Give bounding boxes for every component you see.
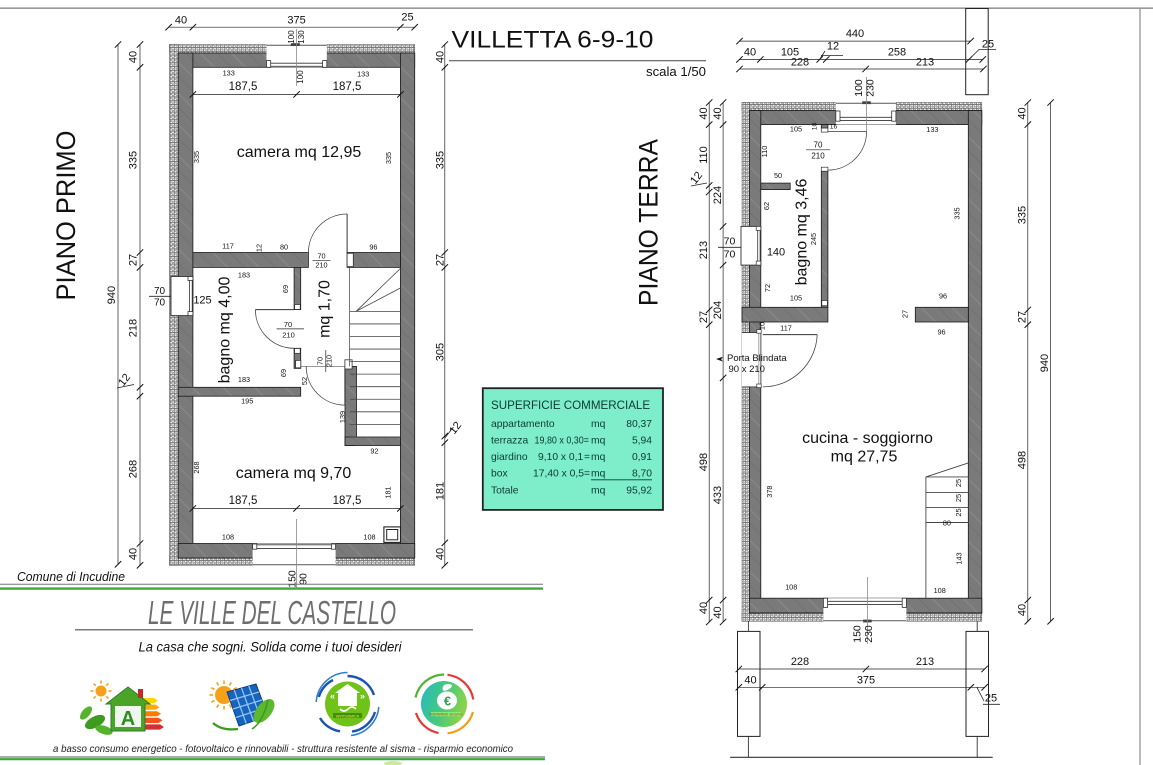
svg-text:40: 40 bbox=[744, 675, 756, 687]
svg-text:375: 375 bbox=[287, 15, 305, 27]
svg-text:LE VILLE DEL CASTELLO: LE VILLE DEL CASTELLO bbox=[148, 594, 396, 631]
svg-text:mq 27,75: mq 27,75 bbox=[831, 449, 898, 466]
svg-text:108: 108 bbox=[222, 533, 234, 542]
svg-text:mq: mq bbox=[591, 469, 606, 480]
svg-text:335: 335 bbox=[192, 151, 201, 163]
svg-text:70: 70 bbox=[316, 357, 325, 365]
svg-text:70: 70 bbox=[284, 320, 292, 329]
svg-text:16: 16 bbox=[830, 124, 838, 131]
svg-text:70: 70 bbox=[317, 252, 325, 261]
svg-text:213: 213 bbox=[916, 656, 934, 668]
svg-text:box: box bbox=[491, 469, 508, 480]
svg-text:10: 10 bbox=[758, 322, 767, 330]
svg-text:17,40 x 0,5: 17,40 x 0,5 bbox=[533, 469, 584, 480]
svg-text:40: 40 bbox=[1017, 604, 1029, 616]
svg-text:25: 25 bbox=[985, 693, 997, 705]
svg-text:95,92: 95,92 bbox=[626, 486, 652, 497]
svg-text:mq: mq bbox=[591, 419, 606, 430]
svg-text:70: 70 bbox=[154, 298, 166, 309]
svg-text:218: 218 bbox=[128, 319, 140, 337]
svg-text:19,80 x 0,30=: 19,80 x 0,30= bbox=[535, 436, 590, 447]
svg-text:12: 12 bbox=[255, 244, 264, 252]
svg-text:268: 268 bbox=[192, 461, 201, 473]
svg-text:80: 80 bbox=[280, 243, 288, 252]
svg-text:50: 50 bbox=[774, 171, 782, 180]
svg-text:245: 245 bbox=[809, 233, 818, 245]
svg-text:mq: mq bbox=[591, 436, 606, 447]
svg-text:433: 433 bbox=[712, 486, 724, 504]
svg-text:90 x 210: 90 x 210 bbox=[729, 364, 765, 375]
svg-text:69: 69 bbox=[279, 369, 288, 377]
svg-text:mq 1,70: mq 1,70 bbox=[317, 280, 334, 338]
svg-text:70: 70 bbox=[814, 141, 823, 150]
svg-text:498: 498 bbox=[1017, 451, 1029, 469]
svg-text:181: 181 bbox=[384, 486, 393, 498]
svg-text:RISPARMIO SICURO: RISPARMIO SICURO bbox=[430, 713, 463, 717]
svg-text:90: 90 bbox=[298, 573, 310, 585]
svg-text:PIANO TERRA: PIANO TERRA bbox=[634, 139, 664, 306]
svg-text:27: 27 bbox=[435, 254, 447, 266]
svg-text:335: 335 bbox=[435, 151, 447, 169]
svg-text:210: 210 bbox=[811, 152, 825, 161]
svg-text:5,94: 5,94 bbox=[632, 436, 652, 447]
svg-text:40: 40 bbox=[712, 107, 724, 119]
svg-text:335: 335 bbox=[128, 151, 140, 169]
svg-text:335: 335 bbox=[952, 207, 961, 219]
svg-text:133: 133 bbox=[223, 69, 235, 78]
svg-text:213: 213 bbox=[916, 57, 934, 69]
svg-text:»: » bbox=[360, 691, 365, 701]
svg-text:camera mq 9,70: camera mq 9,70 bbox=[236, 465, 352, 482]
svg-text:40: 40 bbox=[744, 47, 756, 59]
svg-text:108: 108 bbox=[934, 586, 946, 595]
svg-text:181: 181 bbox=[435, 482, 447, 500]
svg-text:498: 498 bbox=[698, 453, 710, 471]
svg-text:940: 940 bbox=[1039, 354, 1051, 372]
svg-text:PIANO PRIMO: PIANO PRIMO bbox=[51, 131, 81, 301]
svg-text:8,70: 8,70 bbox=[632, 469, 652, 480]
svg-text:80: 80 bbox=[943, 519, 951, 528]
svg-text:143: 143 bbox=[955, 552, 964, 564]
svg-text:228: 228 bbox=[791, 656, 809, 668]
svg-text:27: 27 bbox=[698, 311, 710, 323]
svg-text:335: 335 bbox=[1017, 206, 1029, 224]
svg-text:108: 108 bbox=[363, 533, 375, 542]
svg-text:40: 40 bbox=[698, 602, 710, 614]
svg-text:Porta Blindata: Porta Blindata bbox=[727, 353, 787, 364]
svg-text:305: 305 bbox=[435, 343, 447, 361]
svg-text:187,5: 187,5 bbox=[229, 495, 258, 507]
svg-text:9,10 x 0,1: 9,10 x 0,1 bbox=[538, 452, 583, 463]
svg-text:mq: mq bbox=[591, 452, 606, 463]
svg-text:bagno mq 4,00: bagno mq 4,00 bbox=[217, 277, 234, 384]
svg-text:187,5: 187,5 bbox=[229, 81, 258, 93]
svg-text:25: 25 bbox=[954, 479, 963, 487]
svg-text:110: 110 bbox=[698, 146, 710, 164]
svg-text:25: 25 bbox=[954, 508, 963, 516]
svg-text:150: 150 bbox=[852, 625, 864, 643]
svg-text:70: 70 bbox=[154, 286, 166, 297]
svg-text:210: 210 bbox=[282, 331, 295, 340]
svg-text:117: 117 bbox=[780, 324, 792, 333]
svg-text:0,91: 0,91 bbox=[632, 452, 652, 463]
svg-text:A: A bbox=[121, 708, 135, 730]
svg-text:«: « bbox=[330, 691, 335, 701]
svg-text:105: 105 bbox=[790, 125, 802, 134]
svg-text:100: 100 bbox=[287, 30, 296, 44]
svg-text:335: 335 bbox=[384, 152, 393, 164]
svg-text:228: 228 bbox=[791, 57, 809, 69]
svg-text:108: 108 bbox=[785, 583, 797, 592]
svg-text:224: 224 bbox=[712, 186, 724, 204]
svg-text:27: 27 bbox=[1017, 311, 1029, 323]
svg-text:133: 133 bbox=[357, 70, 369, 79]
svg-text:187,5: 187,5 bbox=[333, 81, 362, 93]
svg-text:€: € bbox=[444, 695, 451, 709]
svg-text:Totale: Totale bbox=[491, 486, 519, 497]
svg-text:940: 940 bbox=[106, 286, 118, 304]
svg-text:40: 40 bbox=[712, 606, 724, 618]
svg-text:27: 27 bbox=[128, 254, 140, 266]
svg-text:268: 268 bbox=[128, 460, 140, 478]
svg-text:195: 195 bbox=[241, 397, 253, 406]
svg-text:80,37: 80,37 bbox=[626, 419, 652, 430]
svg-text:187,5: 187,5 bbox=[333, 495, 362, 507]
svg-text:10: 10 bbox=[812, 123, 819, 131]
svg-text:210: 210 bbox=[325, 355, 334, 367]
svg-text:camera mq 12,95: camera mq 12,95 bbox=[237, 144, 362, 161]
svg-text:52: 52 bbox=[300, 377, 309, 385]
svg-text:96: 96 bbox=[937, 328, 945, 337]
svg-text:62: 62 bbox=[762, 202, 771, 210]
svg-text:117: 117 bbox=[222, 242, 234, 251]
svg-text:40: 40 bbox=[435, 548, 447, 560]
svg-text:183: 183 bbox=[238, 375, 250, 384]
svg-text:appartamento: appartamento bbox=[491, 419, 555, 430]
svg-text:scala 1/50: scala 1/50 bbox=[646, 65, 706, 79]
svg-text:40: 40 bbox=[698, 107, 710, 119]
svg-text:69: 69 bbox=[281, 285, 290, 293]
svg-text:SUPERFICIE COMMERCIALE: SUPERFICIE COMMERCIALE bbox=[491, 399, 650, 412]
svg-text:70: 70 bbox=[724, 236, 736, 248]
svg-text:183: 183 bbox=[238, 271, 250, 280]
svg-text:cucina - soggiorno: cucina - soggiorno bbox=[802, 430, 933, 447]
svg-text:96: 96 bbox=[369, 243, 377, 252]
svg-text:a basso consumo energetico -: a basso consumo energetico - fotovoltaic… bbox=[53, 744, 513, 755]
svg-text:terrazza: terrazza bbox=[491, 436, 528, 447]
svg-text:12: 12 bbox=[827, 41, 839, 53]
svg-text:25: 25 bbox=[401, 12, 413, 24]
svg-text:105: 105 bbox=[790, 294, 802, 303]
svg-text:25: 25 bbox=[954, 494, 963, 502]
svg-text:VILLETTA 6-9-10: VILLETTA 6-9-10 bbox=[452, 27, 654, 54]
svg-text:=: = bbox=[584, 469, 590, 480]
svg-text:ANTISISMICA: ANTISISMICA bbox=[336, 715, 360, 719]
svg-text:130: 130 bbox=[297, 30, 306, 44]
svg-text:210: 210 bbox=[315, 261, 327, 270]
svg-text:100: 100 bbox=[296, 70, 305, 84]
svg-text:230: 230 bbox=[865, 79, 877, 97]
svg-text:25: 25 bbox=[982, 39, 994, 51]
svg-text:giardino: giardino bbox=[491, 452, 528, 463]
svg-text:258: 258 bbox=[888, 47, 906, 59]
svg-text:40: 40 bbox=[1017, 107, 1029, 119]
svg-text:230: 230 bbox=[863, 625, 875, 643]
svg-text:213: 213 bbox=[698, 241, 710, 259]
svg-text:27: 27 bbox=[901, 310, 910, 318]
svg-text:100: 100 bbox=[853, 79, 865, 97]
svg-text:72: 72 bbox=[763, 284, 772, 292]
svg-text:96: 96 bbox=[939, 292, 947, 301]
svg-text:110: 110 bbox=[760, 146, 769, 158]
svg-text:140: 140 bbox=[767, 247, 785, 259]
svg-text:70: 70 bbox=[724, 249, 736, 261]
svg-text:139: 139 bbox=[338, 411, 347, 423]
svg-text:mq: mq bbox=[591, 486, 606, 497]
svg-text:40: 40 bbox=[128, 51, 140, 63]
svg-text:204: 204 bbox=[712, 301, 724, 319]
svg-text:133: 133 bbox=[926, 125, 938, 134]
svg-text:Comune di Incudine: Comune di Incudine bbox=[17, 569, 125, 584]
svg-text:40: 40 bbox=[435, 51, 447, 63]
svg-text:=: = bbox=[584, 452, 590, 463]
svg-text:40: 40 bbox=[128, 548, 140, 560]
svg-text:375: 375 bbox=[857, 675, 875, 687]
svg-text:378: 378 bbox=[765, 486, 774, 498]
svg-text:440: 440 bbox=[846, 28, 864, 40]
svg-text:40: 40 bbox=[175, 15, 187, 27]
svg-text:125: 125 bbox=[193, 295, 211, 307]
svg-text:La casa che sogni. Solida come: La casa che sogni. Solida come i tuoi de… bbox=[139, 640, 403, 655]
svg-text:92: 92 bbox=[370, 447, 378, 456]
svg-text:bagno mq 3,46: bagno mq 3,46 bbox=[794, 179, 811, 286]
